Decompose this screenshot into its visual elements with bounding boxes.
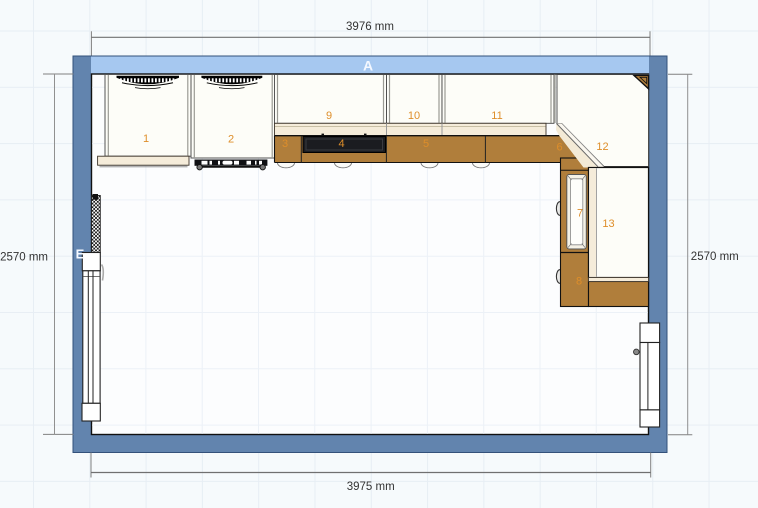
svg-text:10: 10 [408,110,420,122]
svg-text:5: 5 [423,138,429,150]
svg-text:2570 mm: 2570 mm [0,252,48,264]
svg-text:E: E [76,247,85,262]
svg-text:11: 11 [491,110,502,122]
svg-text:9: 9 [326,110,332,122]
svg-text:13: 13 [602,218,614,230]
svg-text:7: 7 [577,208,583,220]
svg-text:4: 4 [338,138,344,150]
svg-text:3976 mm: 3976 mm [346,21,394,33]
svg-text:12: 12 [596,141,608,153]
svg-text:1: 1 [143,133,149,145]
svg-text:3: 3 [282,138,288,150]
svg-text:2570 mm: 2570 mm [691,251,739,263]
svg-text:A: A [363,58,373,74]
svg-text:2: 2 [228,134,234,146]
svg-text:3975 mm: 3975 mm [347,481,395,493]
svg-text:6: 6 [556,142,562,154]
svg-text:8: 8 [576,276,582,288]
